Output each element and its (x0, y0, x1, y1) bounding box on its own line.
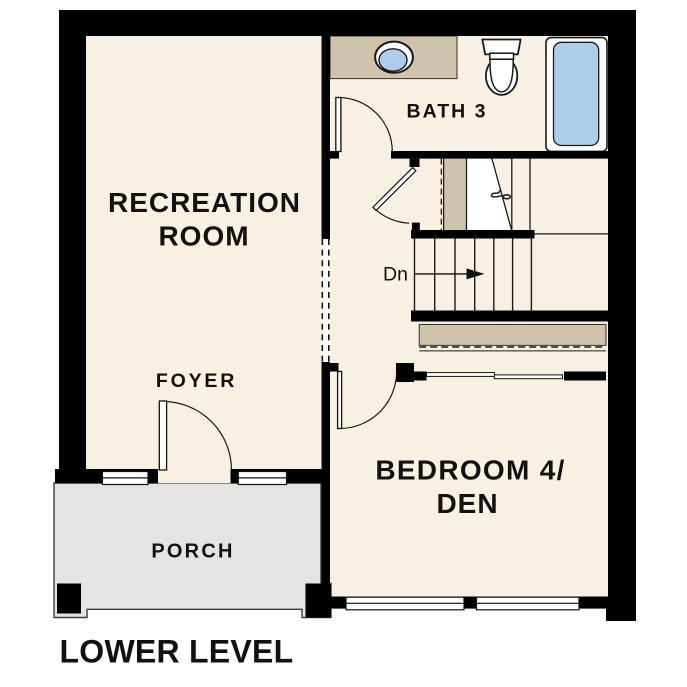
svg-text:DEN: DEN (436, 488, 498, 519)
svg-text:Dn: Dn (383, 264, 408, 286)
svg-text:BEDROOM 4/: BEDROOM 4/ (375, 455, 565, 486)
svg-text:RECREATION: RECREATION (108, 187, 301, 218)
svg-text:BATH 3: BATH 3 (407, 101, 488, 123)
svg-text:ROOM: ROOM (158, 221, 249, 252)
svg-text:PORCH: PORCH (151, 541, 234, 563)
svg-text:FOYER: FOYER (156, 370, 237, 392)
svg-text:LOWER LEVEL: LOWER LEVEL (60, 634, 294, 670)
